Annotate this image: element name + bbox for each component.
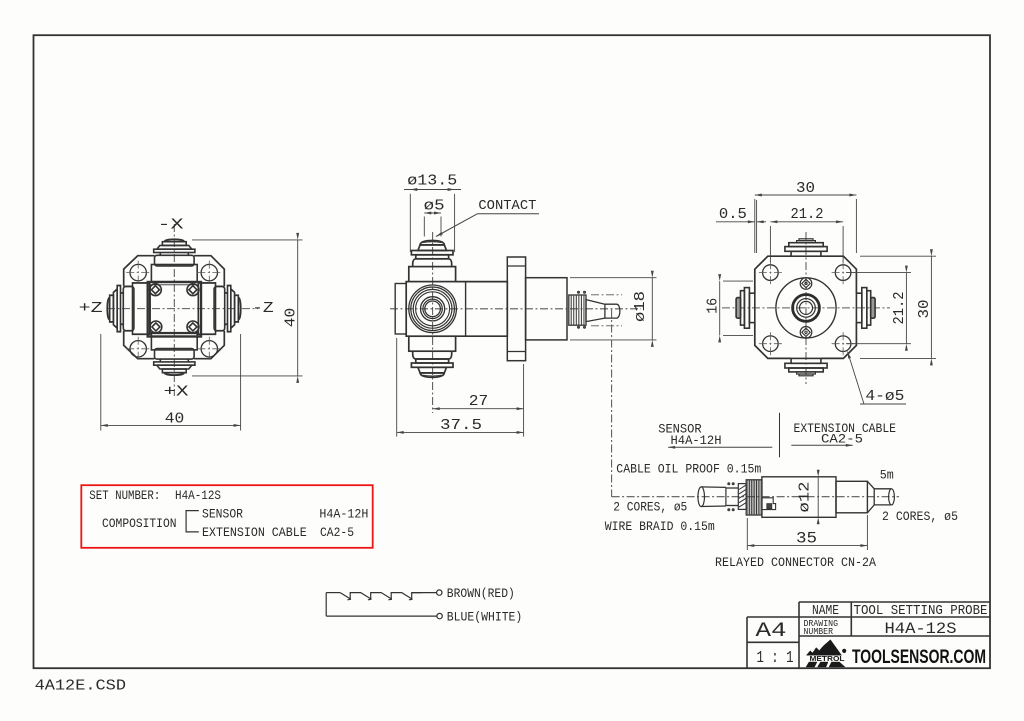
- svg-text:35: 35: [796, 529, 817, 547]
- svg-text:WIRE BRAID 0.15m: WIRE BRAID 0.15m: [605, 519, 715, 534]
- svg-text:TOOLSENSOR.COM: TOOLSENSOR.COM: [852, 646, 986, 668]
- svg-text:1 : 1: 1 : 1: [757, 649, 794, 668]
- svg-text:EXTENSION CABLE: EXTENSION CABLE: [202, 525, 307, 540]
- svg-text:H4A-12S: H4A-12S: [175, 488, 221, 503]
- svg-text:16: 16: [704, 298, 721, 314]
- svg-text:NAME: NAME: [812, 604, 839, 619]
- svg-text:40: 40: [283, 308, 300, 328]
- svg-text:BROWN(RED): BROWN(RED): [447, 586, 515, 601]
- svg-text:H4A-12H: H4A-12H: [671, 433, 722, 448]
- svg-text:BLUE(WHITE): BLUE(WHITE): [447, 610, 523, 625]
- svg-text:40: 40: [165, 410, 185, 427]
- svg-text:30: 30: [796, 180, 815, 197]
- svg-text:COMPOSITION: COMPOSITION: [102, 516, 177, 531]
- svg-text:30: 30: [916, 300, 933, 319]
- svg-text:ø12: ø12: [797, 482, 814, 513]
- svg-text:27: 27: [469, 393, 489, 410]
- svg-text:-X: -X: [158, 217, 184, 234]
- svg-text:37.5: 37.5: [440, 417, 482, 434]
- svg-text:21.2: 21.2: [791, 206, 824, 223]
- svg-text:CONTACT: CONTACT: [478, 198, 536, 214]
- svg-text:2 CORES, ø5: 2 CORES, ø5: [613, 499, 687, 514]
- svg-text:NUMBER: NUMBER: [804, 627, 834, 637]
- svg-text:0.5: 0.5: [719, 206, 747, 223]
- svg-text:ø13.5: ø13.5: [407, 173, 457, 190]
- svg-text:CABLE OIL PROOF 0.15m: CABLE OIL PROOF 0.15m: [616, 462, 761, 477]
- svg-text:+X: +X: [164, 384, 189, 401]
- svg-text:TOOL SETTING PROBE: TOOL SETTING PROBE: [854, 604, 988, 619]
- svg-text:RELAYED CONNECTOR CN-2A: RELAYED CONNECTOR CN-2A: [715, 555, 876, 570]
- svg-text:SENSOR: SENSOR: [202, 507, 243, 522]
- svg-text:4-ø5: 4-ø5: [865, 388, 904, 405]
- svg-text:ø5: ø5: [424, 197, 445, 214]
- svg-text:H4A-12S: H4A-12S: [885, 620, 957, 638]
- svg-text:21.2: 21.2: [891, 292, 908, 325]
- svg-text:5m: 5m: [880, 468, 894, 483]
- svg-text:+Z: +Z: [79, 300, 103, 317]
- svg-text:CA2-5: CA2-5: [320, 525, 354, 540]
- svg-text:H4A-12H: H4A-12H: [319, 507, 368, 522]
- svg-text:SET NUMBER:: SET NUMBER:: [89, 488, 160, 503]
- svg-text:CA2-5: CA2-5: [821, 432, 863, 447]
- svg-text:4A12E.CSD: 4A12E.CSD: [35, 679, 126, 695]
- svg-text:-Z: -Z: [252, 300, 274, 317]
- svg-text:A4: A4: [756, 620, 787, 643]
- svg-text:2 CORES, ø5: 2 CORES, ø5: [882, 509, 958, 524]
- svg-text:ø18: ø18: [632, 291, 649, 322]
